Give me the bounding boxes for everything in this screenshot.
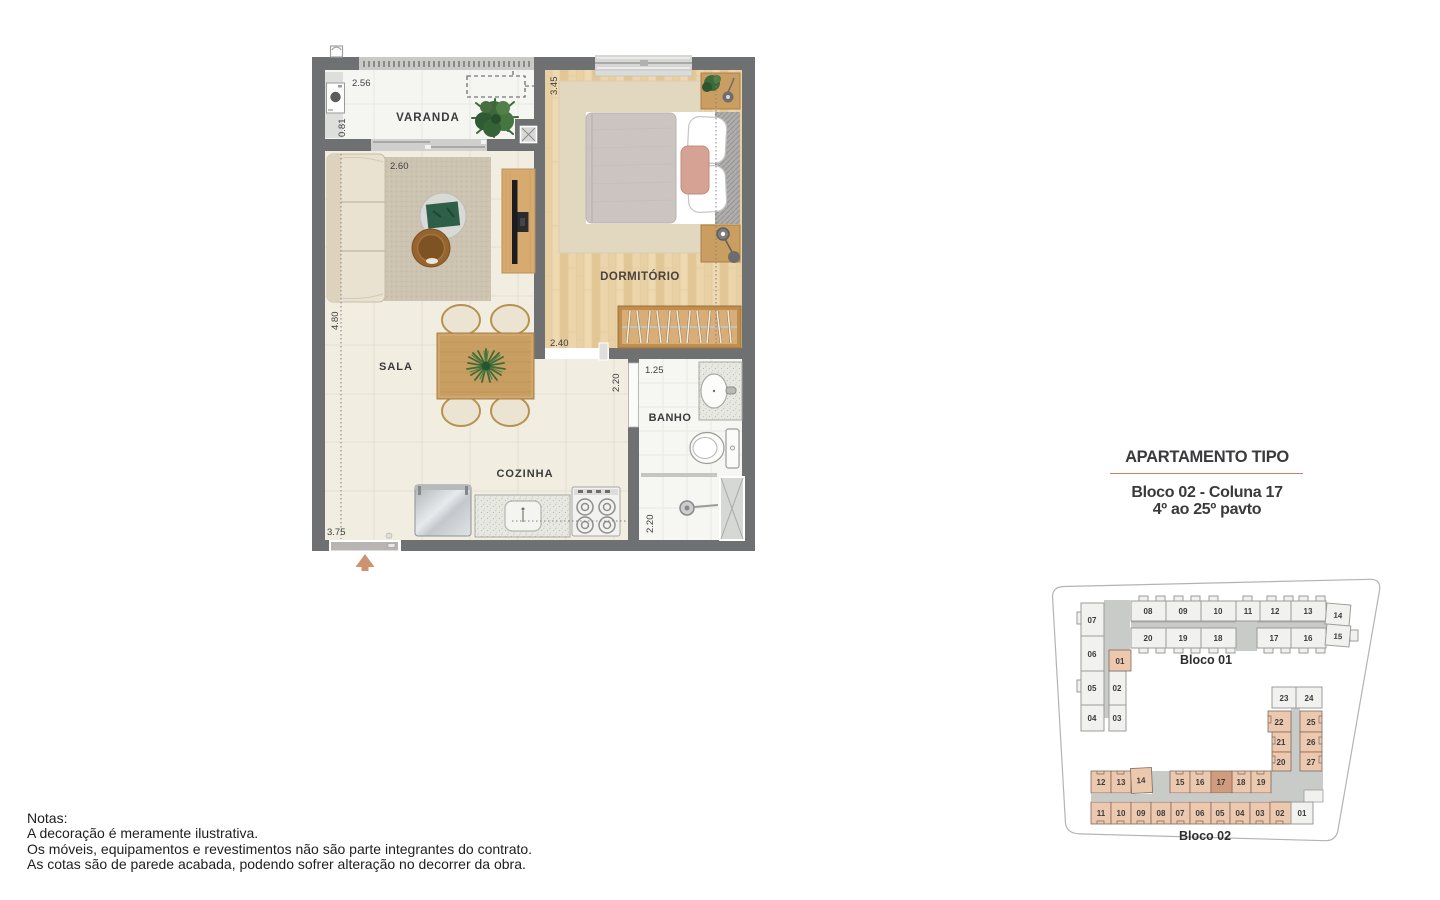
svg-text:26: 26 <box>1307 738 1316 747</box>
svg-text:02: 02 <box>1113 684 1122 693</box>
svg-text:16: 16 <box>1304 634 1313 643</box>
svg-text:14: 14 <box>1333 611 1343 621</box>
svg-text:2.20: 2.20 <box>611 374 622 393</box>
svg-text:SALA: SALA <box>379 361 413 373</box>
svg-text:06: 06 <box>1196 809 1205 818</box>
svg-text:09: 09 <box>1179 607 1188 616</box>
svg-text:3.45: 3.45 <box>549 77 560 96</box>
svg-text:02: 02 <box>1276 809 1285 818</box>
svg-text:2.60: 2.60 <box>390 161 409 172</box>
svg-text:Bloco 01: Bloco 01 <box>1180 653 1232 667</box>
svg-text:22: 22 <box>1275 718 1284 727</box>
svg-text:0.81: 0.81 <box>337 119 348 138</box>
svg-text:05: 05 <box>1088 684 1097 693</box>
svg-text:2.56: 2.56 <box>352 78 371 89</box>
svg-text:01: 01 <box>1298 809 1307 818</box>
svg-text:19: 19 <box>1179 634 1188 643</box>
svg-text:10: 10 <box>1117 809 1126 818</box>
svg-text:15: 15 <box>1176 778 1185 787</box>
svg-text:15: 15 <box>1333 632 1343 642</box>
svg-text:Bloco 02: Bloco 02 <box>1179 829 1231 843</box>
svg-text:12: 12 <box>1271 607 1280 616</box>
svg-text:08: 08 <box>1144 607 1153 616</box>
svg-text:17: 17 <box>1270 634 1279 643</box>
svg-text:09: 09 <box>1137 809 1146 818</box>
svg-text:4.80: 4.80 <box>330 312 341 331</box>
svg-text:10: 10 <box>1214 607 1223 616</box>
svg-text:13: 13 <box>1304 607 1313 616</box>
svg-text:07: 07 <box>1088 616 1097 625</box>
svg-text:2.20: 2.20 <box>645 515 656 534</box>
svg-text:01: 01 <box>1116 657 1125 666</box>
svg-text:11: 11 <box>1097 809 1106 818</box>
svg-text:1.25: 1.25 <box>645 365 664 376</box>
svg-text:COZINHA: COZINHA <box>496 468 553 480</box>
svg-text:18: 18 <box>1214 634 1223 643</box>
svg-text:24: 24 <box>1305 694 1314 703</box>
svg-text:VARANDA: VARANDA <box>396 112 460 124</box>
svg-text:04: 04 <box>1088 714 1097 723</box>
svg-text:05: 05 <box>1216 809 1225 818</box>
svg-text:07: 07 <box>1176 809 1185 818</box>
svg-text:13: 13 <box>1117 778 1126 787</box>
svg-text:18: 18 <box>1237 778 1246 787</box>
svg-text:19: 19 <box>1257 778 1266 787</box>
svg-text:16: 16 <box>1196 778 1205 787</box>
svg-text:12: 12 <box>1097 778 1106 787</box>
svg-text:25: 25 <box>1307 718 1316 727</box>
svg-text:14: 14 <box>1136 776 1146 785</box>
svg-text:03: 03 <box>1256 809 1265 818</box>
svg-text:11: 11 <box>1244 607 1253 616</box>
svg-text:06: 06 <box>1088 650 1097 659</box>
svg-text:17: 17 <box>1217 778 1226 787</box>
svg-text:08: 08 <box>1157 809 1166 818</box>
svg-text:23: 23 <box>1280 694 1289 703</box>
svg-text:27: 27 <box>1307 758 1316 767</box>
svg-text:03: 03 <box>1113 714 1122 723</box>
svg-text:DORMITÓRIO: DORMITÓRIO <box>600 270 680 283</box>
svg-text:2.40: 2.40 <box>550 338 569 349</box>
svg-text:04: 04 <box>1236 809 1245 818</box>
svg-text:20: 20 <box>1277 758 1286 767</box>
svg-text:20: 20 <box>1144 634 1153 643</box>
svg-text:21: 21 <box>1277 738 1286 747</box>
svg-text:3.75: 3.75 <box>327 527 346 538</box>
svg-text:BANHO: BANHO <box>649 412 692 424</box>
